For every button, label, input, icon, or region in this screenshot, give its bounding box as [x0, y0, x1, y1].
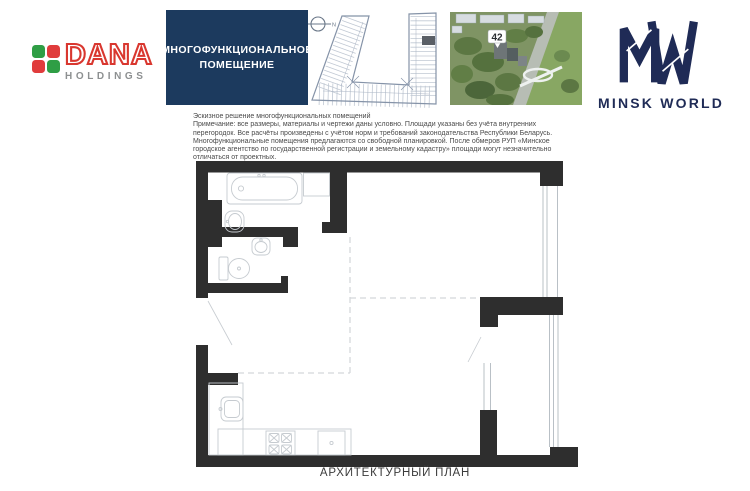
- dana-logo-text: DANA HOLDINGS: [65, 42, 153, 82]
- page: DANA HOLDINGS МНОГОФУНКЦИОНАЛЬНОЕ ПОМЕЩЕ…: [0, 0, 750, 491]
- square-red-icon: [32, 60, 45, 73]
- square-green-icon: [47, 60, 60, 73]
- dana-subbrand-text: HOLDINGS: [65, 71, 153, 82]
- balcony-door: [468, 337, 491, 410]
- dashed-partition: [238, 237, 480, 373]
- premises-type-line2: ПОМЕЩЕНИЕ: [200, 58, 275, 73]
- square-green-icon: [32, 45, 45, 58]
- floor-plan: [185, 155, 585, 480]
- mw-monogram-icon: [611, 16, 703, 86]
- aerial-photo: 42: [450, 12, 582, 110]
- minsk-world-wordmark: MINSK WORLD: [598, 95, 716, 111]
- dana-logo-squares-icon: [32, 45, 60, 73]
- compass-icon: N: [308, 17, 336, 31]
- north-label: N: [332, 23, 336, 29]
- dana-holdings-logo: DANA HOLDINGS: [32, 42, 153, 82]
- toilet: [219, 257, 250, 280]
- window: [543, 186, 558, 447]
- premises-type-box: МНОГОФУНКЦИОНАЛЬНОЕ ПОМЕЩЕНИЕ: [166, 10, 308, 105]
- kitchen-counter: [209, 383, 243, 455]
- square-red-icon: [47, 45, 60, 58]
- plan-caption: АРХИТЕКТУРНЫЙ ПЛАН: [195, 467, 595, 479]
- dana-brand-text: DANA: [65, 42, 153, 68]
- minsk-world-logo: MINSK WORLD: [598, 16, 716, 111]
- bathtub: [227, 173, 302, 204]
- premises-type-line1: МНОГОФУНКЦИОНАЛЬНОЕ: [161, 43, 313, 58]
- kitchen-appliance: [318, 431, 345, 455]
- wc-sink: [252, 238, 270, 255]
- washing-machine: [304, 173, 330, 196]
- plan-walls: [196, 161, 578, 467]
- site-plan-thumbnail: N: [303, 8, 440, 121]
- stove: [266, 431, 295, 455]
- building-number: 42: [491, 33, 503, 44]
- kitchen-sink: [219, 397, 243, 421]
- entrance-door: [208, 301, 232, 345]
- highlighted-unit: [422, 36, 435, 45]
